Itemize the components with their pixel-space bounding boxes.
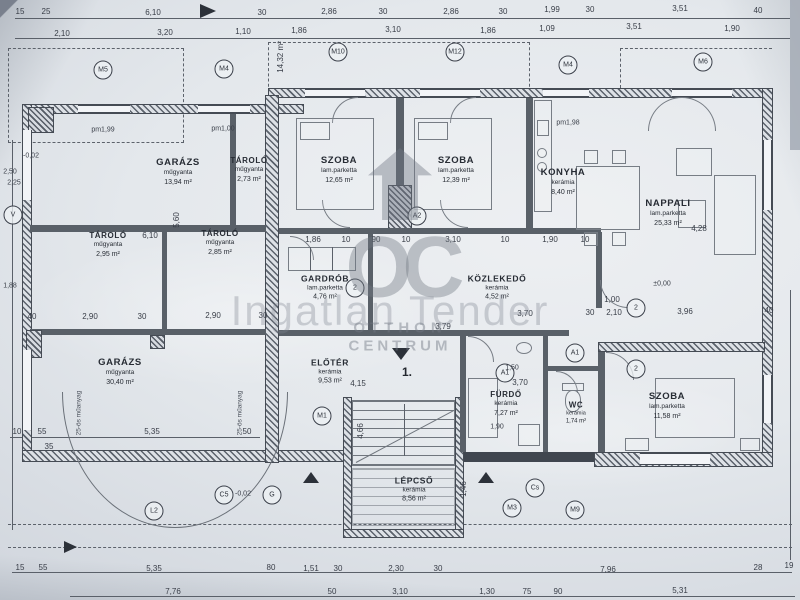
dim-label: 2,90: [205, 312, 221, 320]
marker-2a: 2: [346, 279, 365, 298]
room-label-entry: ELŐTÉRkerámia9,53 m²: [311, 358, 349, 387]
dim-line: [70, 596, 795, 597]
wardrobe-shelves: [288, 247, 356, 271]
dim-label: 1,10: [235, 28, 251, 36]
dim-label: 10: [501, 236, 510, 244]
parapet-note: pm1,00: [211, 126, 234, 133]
entry-arrow-icon: [392, 348, 410, 360]
pillow: [418, 122, 448, 140]
photo-corner-shadow: [0, 0, 26, 34]
wardrobe-divider: [310, 247, 311, 271]
level-note: ±0,00: [653, 281, 670, 288]
toilet-tank: [562, 383, 584, 391]
dim-label: 1,00: [604, 296, 620, 304]
marker-l2: L2: [145, 502, 164, 521]
opening-marker-m10: M10: [329, 43, 348, 62]
dim-label: 4,28: [691, 225, 707, 233]
dim-label: 3,79: [435, 323, 451, 331]
unit-number: 1.: [402, 365, 412, 379]
dim-label: 1,86: [291, 27, 307, 35]
room-label-storage-3: TÁROLÓműgyanta2,85 m²: [201, 229, 238, 257]
wall: [460, 452, 596, 462]
dim-label: 3,10: [445, 236, 461, 244]
dim-label: 30: [138, 313, 147, 321]
dim-label: 75: [523, 588, 532, 596]
survey-arrow-icon: [64, 541, 77, 553]
kitchen-sink: [537, 120, 549, 136]
dim-label: 3,96: [677, 308, 693, 316]
parapet-note: pm1,98: [556, 120, 579, 127]
dim-label: 1,99: [544, 6, 560, 14]
stove-burner: [537, 148, 547, 158]
window: [198, 105, 250, 113]
window: [305, 89, 365, 97]
dim-label: 1,88: [3, 283, 17, 290]
dim-label-vertical: 5,60: [173, 212, 181, 228]
dim-label: 6,10: [142, 232, 158, 240]
door-arc: [648, 97, 682, 131]
dim-label: 30: [586, 309, 595, 317]
room-label-living-room: NAPPALIlam.parketta25,33 m²: [645, 198, 690, 228]
dim-label: 1,90: [542, 236, 558, 244]
dim-label: 10: [342, 236, 351, 244]
room-label-kitchen: KONYHAkerámia8,40 m²: [541, 167, 586, 197]
level-note: -0,02: [235, 491, 251, 498]
room-label-garage-1: GARÁZSműgyanta13,94 m²: [156, 157, 200, 187]
pillow: [300, 122, 330, 140]
window: [543, 89, 589, 97]
dim-label: 2,25: [7, 180, 21, 187]
dim-label: 1,86: [480, 27, 496, 35]
marker-cs: Cs: [526, 479, 545, 498]
boundary-dashed-line: [8, 547, 792, 548]
stairwell-wall: [343, 397, 352, 538]
dim-label: 30: [258, 9, 267, 17]
dim-label-vertical: 4,66: [357, 423, 365, 439]
window: [672, 89, 732, 97]
pipe-note: 25-ös műanyag: [237, 391, 244, 436]
dim-label: 55: [39, 564, 48, 572]
window: [763, 140, 772, 210]
dim-label: 10: [402, 236, 411, 244]
dim-label: 1,90: [490, 424, 504, 431]
dim-label: 4,15: [350, 380, 366, 388]
dim-label: 2,30: [388, 565, 404, 573]
dim-label-vertical: 14,32 m²: [277, 41, 285, 73]
driveway-curve: [175, 392, 288, 528]
dim-label: 40: [28, 313, 37, 321]
wall: [279, 228, 601, 234]
opening-marker-m4: M4: [215, 60, 234, 79]
chair: [584, 150, 598, 164]
room-label-storage-1: TÁROLÓműgyanta2,73 m²: [230, 156, 267, 184]
dim-label: 28: [754, 564, 763, 572]
room-label-closet: GARDRÓBlam.parketta4,76 m²: [301, 274, 349, 303]
flag-icon: [200, 4, 216, 18]
dim-label: 90: [554, 588, 563, 596]
wall: [543, 336, 548, 452]
dim-label: 25: [42, 8, 51, 16]
marker-a2: A2: [408, 207, 427, 226]
wall: [279, 330, 569, 336]
dim-label: 1,09: [539, 25, 555, 33]
dim-label: 30: [586, 6, 595, 14]
section-arrow-icon: [303, 472, 319, 483]
dim-label: 50: [243, 428, 252, 436]
terrace-dashed-line: [620, 48, 772, 49]
marker-g: G: [263, 486, 282, 505]
dim-line: [12, 140, 13, 530]
dim-label: 35: [45, 443, 54, 451]
terrace-dashed-outline: [268, 42, 530, 92]
dim-label-vertical: 1,46: [460, 481, 468, 497]
opening-marker-m9: M9: [566, 501, 585, 520]
dim-label: 2,86: [321, 8, 337, 16]
dim-label: 2,10: [54, 30, 70, 38]
opening-marker-m3: M3: [503, 499, 522, 518]
wall: [368, 234, 373, 331]
dim-label: 2,90: [82, 313, 98, 321]
stair-direction-line: [404, 404, 405, 456]
washing-machine: [518, 424, 540, 446]
dim-label: 3,51: [626, 23, 642, 31]
dim-label: 40: [754, 7, 763, 15]
stairwell-wall: [343, 529, 464, 538]
opening-marker-m4b: M4: [559, 56, 578, 75]
dining-table: [576, 166, 640, 230]
room-label-bedroom-2: SZOBAlam.parketta12,39 m²: [438, 155, 474, 185]
dim-label: 5,35: [144, 428, 160, 436]
room-label-hallway: KÖZLEKEDŐkerámia4,52 m²: [468, 274, 527, 303]
dim-label: 7,76: [165, 588, 181, 596]
room-label-garage-2: GARÁZSműgyanta30,40 m²: [98, 357, 142, 387]
marker-2c: 2: [627, 360, 646, 379]
garage-door-opening: [22, 130, 32, 200]
dim-line: [15, 38, 790, 39]
pipe-note: 25-ös műanyag: [76, 391, 83, 436]
garage-door-opening: [22, 350, 32, 430]
dim-label: 50: [328, 588, 337, 596]
dim-label: 7,96: [600, 566, 616, 574]
opening-marker-m6: M6: [694, 53, 713, 72]
bathroom-sink: [516, 342, 532, 354]
room-label-bedroom-1: SZOBAlam.parketta12,65 m²: [321, 155, 357, 185]
dim-label: 30: [334, 565, 343, 573]
dim-label: 19: [785, 562, 794, 570]
dim-label: 10: [581, 236, 590, 244]
opening-marker-m5: M5: [94, 61, 113, 80]
room-label-storage-2: TÁROLÓműgyanta2,95 m²: [89, 231, 126, 259]
marker-2b: 2: [627, 299, 646, 318]
wardrobe-divider: [332, 247, 333, 271]
dim-label: 80: [267, 564, 276, 572]
room-label-bathroom: FÜRDŐkerámia7,27 m²: [490, 390, 521, 418]
nightstand: [740, 438, 760, 451]
opening-marker-m12: M12: [446, 43, 465, 62]
dim-label: 2,50: [3, 169, 17, 176]
dim-label: 5,31: [672, 587, 688, 595]
window: [763, 375, 772, 423]
wall: [526, 98, 533, 230]
window: [640, 453, 710, 465]
dim-label: 3,10: [385, 26, 401, 34]
dim-label: 1,30: [479, 588, 495, 596]
dim-line: [790, 290, 791, 560]
nightstand: [625, 438, 649, 451]
dim-label: 1,90: [724, 25, 740, 33]
dim-label: 40: [765, 307, 774, 315]
dim-label: 3,70: [512, 379, 528, 387]
dim-label: 6,10: [145, 9, 161, 17]
wall: [30, 329, 266, 335]
dim-label: 1,86: [305, 236, 321, 244]
opening-marker-m1: M1: [313, 407, 332, 426]
window: [420, 89, 480, 97]
dim-label: 2,86: [443, 8, 459, 16]
dim-label: 90: [372, 236, 381, 244]
level-note: -0,02: [23, 153, 39, 160]
pier-block: [150, 335, 165, 349]
photo-edge-shadow: [790, 0, 800, 150]
dim-label: 1,50: [505, 365, 519, 372]
dim-label: 55: [38, 428, 47, 436]
dim-label: 3,20: [157, 29, 173, 37]
room-label-wc: WCkerámia1,74 m²: [566, 400, 586, 425]
section-arrow-icon: [478, 472, 494, 483]
dim-label: 10: [13, 428, 22, 436]
dim-label: 30: [499, 8, 508, 16]
blueprint-photo: GARÁZSműgyanta13,94 m² TÁROLÓműgyanta2,7…: [0, 0, 800, 600]
wall: [22, 104, 304, 114]
parapet-note: pm1,99: [91, 127, 114, 134]
marker-v: V: [4, 206, 23, 225]
armchair: [676, 148, 712, 176]
dim-label: 5,35: [146, 565, 162, 573]
dim-label: 2,10: [606, 309, 622, 317]
dim-label: 3,51: [672, 5, 688, 13]
dim-label: 15: [16, 8, 25, 16]
room-label-stairs: LÉPCSŐkerámia8,56 m²: [395, 476, 434, 505]
marker-a1a: A1: [566, 344, 585, 363]
dim-line: [15, 18, 790, 19]
dim-label: 3,70: [517, 310, 533, 318]
dim-label: 15: [16, 564, 25, 572]
door-arc: [468, 336, 494, 362]
dim-label: 30: [379, 8, 388, 16]
sofa: [714, 175, 756, 255]
window: [78, 105, 130, 113]
chimney-block: [388, 185, 412, 230]
marker-c5: C5: [215, 486, 234, 505]
dim-label: 3,10: [392, 588, 408, 596]
door-arc: [682, 97, 716, 131]
wall: [598, 342, 765, 352]
chair: [612, 150, 626, 164]
wall: [162, 232, 167, 329]
wall: [598, 342, 605, 452]
room-label-bedroom-3: SZOBAlam.parketta11,58 m²: [649, 391, 685, 421]
terrace-dashed-line: [620, 48, 621, 88]
dim-label: 30: [434, 565, 443, 573]
dim-label: 30: [259, 312, 268, 320]
wall: [460, 336, 466, 452]
dim-label: 1,51: [303, 565, 319, 573]
chair: [612, 232, 626, 246]
